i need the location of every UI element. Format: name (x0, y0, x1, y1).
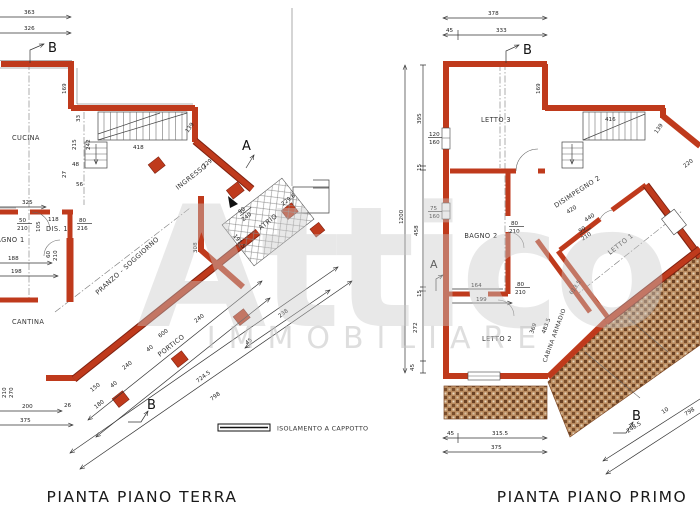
dim-label: 333 (496, 28, 507, 34)
floor-plan-sheet: ATRIO 363 326 B 169 33 215 242 418 139 4… (0, 0, 700, 525)
plan-terra-title: PIANTA PIANO TERRA (47, 488, 238, 506)
dim-label: 150 (90, 382, 102, 394)
dim-label: 45 (446, 28, 454, 34)
dim-label: 105 (36, 221, 42, 232)
watermark: Attico IMMOBILIARE (136, 170, 663, 366)
dim-label: 375 (20, 418, 31, 424)
dim-label: 418 (133, 145, 144, 151)
dim-label: 40 (110, 380, 120, 389)
room-label-bagno1: BAGNO 1 (0, 236, 25, 244)
dim-label: 80 (79, 218, 87, 224)
dim-label: 198 (11, 269, 22, 275)
dim-label: 169 (536, 83, 542, 94)
dim-label: 27 (62, 170, 68, 178)
legend-insulation-label: ISOLAMENTO A CAPPOTTO (277, 425, 368, 433)
dim-label: 56 (76, 182, 84, 188)
dim-label: 169 (62, 83, 68, 94)
dim-label: 33 (76, 114, 82, 122)
dim-label: 325 (22, 200, 33, 206)
dim-label: 200 (22, 404, 33, 410)
section-marker-a: A (242, 139, 251, 154)
dims-terra-bottom: 200 26 375 (0, 403, 73, 425)
dim-label: 118 (48, 217, 59, 223)
dims-primo-top: 378 45 333 B (443, 11, 547, 63)
dim-label: 326 (24, 26, 35, 32)
dim-label: 220 (683, 158, 695, 170)
dim-label: 60 (46, 250, 52, 258)
plan-primo-title: PIANTA PIANO PRIMO (497, 488, 687, 506)
dim-label: 210 (2, 387, 8, 398)
dim-label: 180 (94, 399, 106, 411)
dim-label: 26 (64, 403, 72, 409)
stairs-primo (562, 112, 645, 168)
dim-label: 363 (24, 10, 35, 16)
dim-label: 139 (654, 123, 665, 136)
dim-label: 10 (661, 407, 671, 416)
dim-label: 210 (17, 226, 28, 232)
dim-label: 724.5 (196, 370, 213, 385)
dim-label: 45 (447, 431, 455, 437)
dim-label: 416 (605, 117, 616, 123)
dims-terra-top: 363 326 B (0, 10, 71, 63)
dim-label: 378 (488, 11, 499, 17)
dim-label: 120 (429, 132, 440, 138)
dim-label: 395 (417, 113, 423, 124)
room-label-dis1: DIS. 1 (46, 225, 68, 233)
dim-label: 242 (86, 139, 92, 150)
dim-label: 188 (8, 256, 19, 262)
section-marker-b-bottom: B (147, 398, 156, 413)
section-marker-b-top: B (523, 43, 532, 58)
dim-label: 315.5 (492, 431, 508, 437)
stairs-terra (85, 112, 187, 168)
room-label-letto3: LETTO 3 (481, 116, 511, 124)
floor-plan-drawing: ATRIO 363 326 B 169 33 215 242 418 139 4… (0, 0, 700, 525)
dim-label: 375 (491, 445, 502, 451)
room-label-cantina: CANTINA (12, 318, 44, 326)
dim-label: 160 (429, 140, 440, 146)
section-marker-b-bottom: B (632, 409, 641, 424)
dim-label: 798 (210, 391, 222, 403)
dim-label: 210 (53, 250, 59, 261)
dim-label: 270 (9, 387, 15, 398)
dim-cantina-window: 210 270 (2, 387, 15, 398)
watermark-subword: IMMOBILIARE (207, 321, 550, 356)
dim-label: 216 (77, 226, 88, 232)
legend-insulation: ISOLAMENTO A CAPPOTTO (218, 424, 368, 433)
dim-label: 215 (72, 139, 78, 150)
dim-label: 48 (72, 162, 80, 168)
dim-label: 240 (122, 360, 134, 372)
dim-label: 50 (19, 218, 27, 224)
room-label-cucina: CUCINA (12, 134, 40, 142)
section-marker-b-top: B (48, 41, 57, 56)
